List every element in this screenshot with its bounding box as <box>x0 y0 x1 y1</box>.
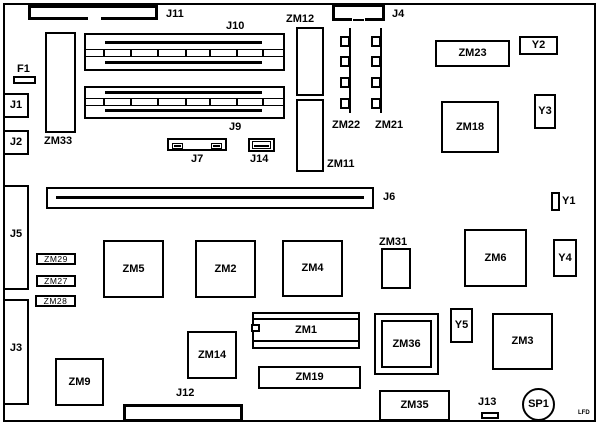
zm21-pad <box>371 77 381 88</box>
label-j11: J11 <box>166 8 184 20</box>
label-zm9: ZM9 <box>69 377 91 388</box>
label-j13: J13 <box>478 396 496 408</box>
connector-j13 <box>481 412 499 419</box>
label-j14: J14 <box>250 153 268 165</box>
zm21-pad <box>371 36 381 47</box>
crystal-y3: Y3 <box>534 94 556 129</box>
speaker-sp1: SP1 <box>522 388 555 421</box>
component-zm14: ZM14 <box>187 331 237 379</box>
component-zm11 <box>296 99 324 172</box>
label-j4: J4 <box>392 8 404 20</box>
j7-right-clip <box>211 143 222 149</box>
label-zm35: ZM35 <box>400 400 428 411</box>
connector-j1: J1 <box>3 93 29 118</box>
j10-top-bar <box>105 41 262 44</box>
component-zm27: ZM27 <box>36 275 76 287</box>
corner-mark: LFD <box>578 410 590 416</box>
label-y1: Y1 <box>562 195 575 207</box>
zm21-pad <box>371 98 381 109</box>
zm22-pad <box>340 36 350 47</box>
label-zm29: ZM29 <box>44 255 68 264</box>
j10-contact-band <box>86 49 283 57</box>
zm22-pad <box>340 56 350 67</box>
label-zm23: ZM23 <box>458 48 486 59</box>
component-zm28: ZM28 <box>35 295 76 307</box>
label-zm18: ZM18 <box>456 122 484 133</box>
connector-j12 <box>123 404 243 422</box>
crystal-y5: Y5 <box>450 308 473 343</box>
label-zm3: ZM3 <box>512 336 534 347</box>
label-j10: J10 <box>226 20 244 32</box>
j9-top-bar <box>105 91 262 94</box>
connector-j7 <box>167 138 227 151</box>
label-y3: Y3 <box>538 106 551 117</box>
zm22-pad <box>340 77 350 88</box>
label-zm1: ZM1 <box>295 325 317 336</box>
connector-j2: J2 <box>3 130 29 155</box>
component-zm35: ZM35 <box>379 390 450 421</box>
label-j2: J2 <box>10 137 22 148</box>
label-y2: Y2 <box>532 40 545 51</box>
crystal-y2: Y2 <box>519 36 558 55</box>
label-j5: J5 <box>10 229 22 240</box>
component-zm33 <box>45 32 76 133</box>
j14-inner <box>252 141 271 149</box>
zm21-pad <box>371 56 381 67</box>
component-zm12 <box>296 27 324 96</box>
pcb-layout-diagram: J11 J4 J10 J9 F1 J1 J2 ZM33 J <box>0 0 600 427</box>
label-zm27: ZM27 <box>44 277 68 286</box>
label-zm36: ZM36 <box>392 339 420 350</box>
crystal-y1 <box>551 192 560 211</box>
label-f1: F1 <box>17 63 30 75</box>
label-zm12: ZM12 <box>286 13 314 25</box>
slot-j6 <box>46 187 374 209</box>
connector-j14 <box>248 138 275 152</box>
j9-bottom-bar <box>105 109 262 112</box>
j6-contact-bar <box>56 196 364 199</box>
component-zm23: ZM23 <box>435 40 510 67</box>
slot-j10 <box>84 33 285 71</box>
connector-j5: J5 <box>3 185 29 290</box>
component-zm36: ZM36 <box>374 313 439 375</box>
label-j9: J9 <box>229 121 241 133</box>
label-zm4: ZM4 <box>302 263 324 274</box>
component-zm2: ZM2 <box>195 240 256 298</box>
j11-key-notch <box>88 16 101 21</box>
label-zm6: ZM6 <box>485 253 507 264</box>
component-zm6: ZM6 <box>464 229 527 287</box>
component-zm1: ZM1 <box>252 312 360 349</box>
j10-bottom-bar <box>105 61 262 64</box>
component-zm5: ZM5 <box>103 240 164 298</box>
j9-contact-band <box>86 98 283 106</box>
zm1-top-line <box>254 318 358 320</box>
label-zm21: ZM21 <box>375 119 403 131</box>
label-y4: Y4 <box>558 253 571 264</box>
zm1-pin1-mark <box>251 324 260 332</box>
component-zm9: ZM9 <box>55 358 104 406</box>
component-zm29: ZM29 <box>36 253 76 265</box>
label-j7: J7 <box>191 153 203 165</box>
label-zm19: ZM19 <box>295 372 323 383</box>
component-zm19: ZM19 <box>258 366 361 389</box>
label-zm14: ZM14 <box>198 350 226 361</box>
label-j6: J6 <box>383 191 395 203</box>
label-zm11: ZM11 <box>327 158 355 170</box>
fuse-f1 <box>13 76 36 84</box>
connector-j3: J3 <box>3 299 29 405</box>
j4-key-line <box>353 19 364 21</box>
component-zm31 <box>381 248 411 289</box>
label-j1: J1 <box>10 100 22 111</box>
label-zm22: ZM22 <box>332 119 360 131</box>
crystal-y4: Y4 <box>553 239 577 277</box>
component-zm18: ZM18 <box>441 101 499 153</box>
label-zm2: ZM2 <box>215 264 237 275</box>
label-sp1: SP1 <box>528 399 549 410</box>
zm22-pad <box>340 98 350 109</box>
label-zm31: ZM31 <box>379 236 407 248</box>
slot-j9 <box>84 86 285 119</box>
label-zm28: ZM28 <box>44 297 68 306</box>
j7-left-clip <box>172 143 183 149</box>
label-j3: J3 <box>10 343 22 354</box>
label-zm33: ZM33 <box>44 135 72 147</box>
label-y5: Y5 <box>455 320 468 331</box>
component-zm3: ZM3 <box>492 313 553 370</box>
zm1-bottom-line <box>254 340 358 342</box>
label-j12: J12 <box>176 387 194 399</box>
component-zm4: ZM4 <box>282 240 343 297</box>
label-zm5: ZM5 <box>123 264 145 275</box>
